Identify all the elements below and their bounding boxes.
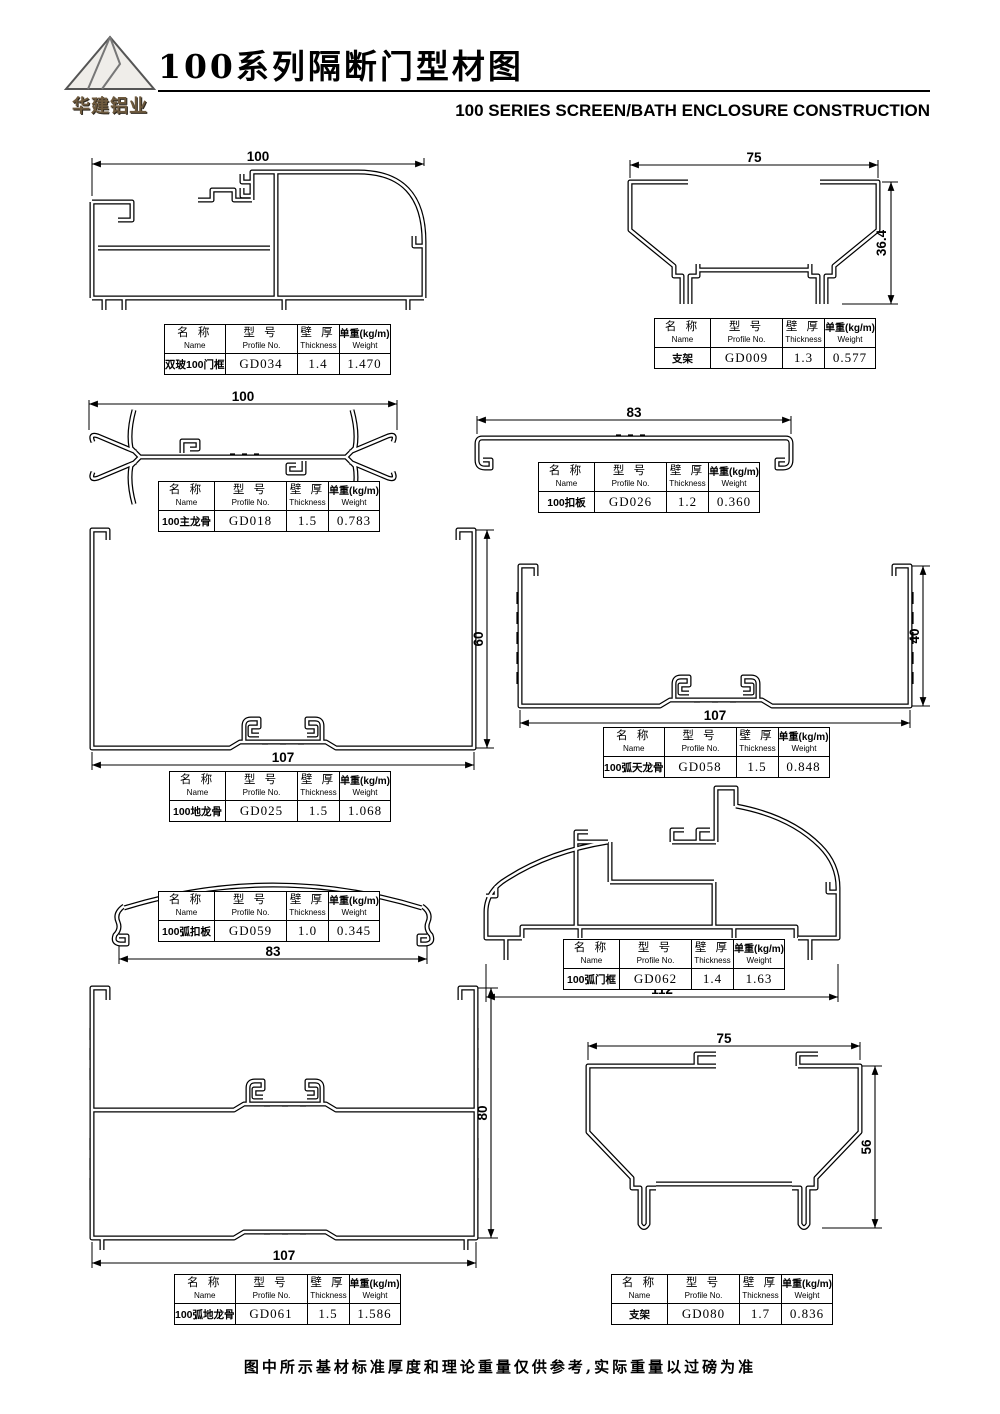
th-model-en: Profile No.: [229, 341, 293, 350]
table-data-row: 双玻100门框 GD034 1.4 1.470: [165, 354, 391, 375]
th-thickness: 壁 厚Thickness: [297, 325, 339, 354]
profile-table-gd059: 名 称Name 型 号Profile No. 壁 厚Thickness 单重(k…: [158, 891, 380, 942]
th-name: 名 称Name: [170, 772, 226, 801]
table-header-row: 名 称Name 型 号Profile No. 壁 厚Thickness 单重(k…: [165, 325, 391, 354]
cell-name: 100地龙骨: [170, 801, 226, 822]
cell-thickness: 1.2: [667, 492, 709, 513]
profile-table-gd062: 名 称Name 型 号Profile No. 壁 厚Thickness 单重(k…: [563, 939, 785, 990]
th-model: 型 号Profile No.: [226, 772, 298, 801]
th-weight: 单重(kg/m)Weight: [329, 482, 380, 511]
th-thickness: 壁 厚Thickness: [287, 482, 329, 511]
cell-model: GD059: [215, 921, 287, 942]
profile-table-gd058: 名 称Name 型 号Profile No. 壁 厚Thickness 单重(k…: [603, 727, 830, 778]
cell-thickness: 1.5: [307, 1304, 349, 1325]
profile-outline-inner: [92, 172, 424, 310]
cell-thickness: 1.0: [287, 921, 329, 942]
profile-outline: [588, 1054, 860, 1228]
th-model: 型 号Profile No.: [711, 319, 783, 348]
th-thickness: 壁 厚Thickness: [307, 1275, 349, 1304]
cell-weight: 1.586: [349, 1304, 400, 1325]
profile-table-gd009: 名 称Name 型 号Profile No. 壁 厚Thickness 单重(k…: [654, 318, 876, 369]
cell-name: 100主龙骨: [159, 511, 215, 532]
profile-outline-inner: [92, 988, 476, 1250]
cell-model: GD034: [225, 354, 297, 375]
footer-note: 图中所示基材标准厚度和理论重量仅供参考,实际重量以过磅为准: [0, 1356, 1000, 1377]
profile-outline: [517, 566, 913, 706]
profile-outline-inner: [486, 788, 838, 960]
cell-name: 100弧扣板: [159, 921, 215, 942]
th-weight-cn: 单重(kg/m): [340, 328, 390, 341]
cell-weight: 1.068: [340, 801, 391, 822]
title-underline: [158, 90, 930, 92]
profile-table-gd025: 名 称Name 型 号Profile No. 壁 厚Thickness 单重(k…: [169, 771, 391, 822]
table-data-row: 100主龙骨 GD018 1.5 0.783: [159, 511, 380, 532]
profile-drawing-gd061: 80 107: [84, 978, 504, 1276]
table-data-row: 100弧地龙骨 GD061 1.5 1.586: [175, 1304, 401, 1325]
th-model: 型 号Profile No.: [595, 463, 667, 492]
table-data-row: 支架 GD009 1.3 0.577: [655, 348, 876, 369]
th-name-cn: 名 称: [165, 327, 225, 341]
table-header-row: 名 称Name 型 号Profile No. 壁 厚Thickness 单重(k…: [612, 1275, 833, 1304]
dim-label-width: 107: [704, 708, 727, 723]
cell-name: 100弧天龙骨: [604, 757, 665, 778]
profile-outline-inner: [588, 1054, 860, 1228]
table-header-row: 名 称Name 型 号Profile No. 壁 厚Thickness 单重(k…: [655, 319, 876, 348]
th-name: 名 称Name: [159, 482, 215, 511]
th-thickness: 壁 厚Thickness: [740, 1275, 782, 1304]
th-model: 型 号Profile No.: [668, 1275, 740, 1304]
th-thickness-en: Thickness: [300, 341, 337, 350]
th-name: 名 称Name: [159, 892, 215, 921]
table-data-row: 100弧天龙骨 GD058 1.5 0.848: [604, 757, 830, 778]
cell-model: GD058: [664, 757, 736, 778]
profile-outline-inner: [92, 530, 474, 748]
dim-label-height: 80: [475, 1105, 490, 1120]
table-header-row: 名 称Name 型 号Profile No. 壁 厚Thickness 单重(k…: [539, 463, 760, 492]
dim-label-width: 100: [232, 389, 255, 404]
cell-thickness: 1.4: [692, 969, 734, 990]
table-header-row: 名 称Name 型 号Profile No. 壁 厚Thickness 单重(k…: [159, 482, 380, 511]
dim-label-width: 107: [272, 750, 295, 765]
th-name: 名 称Name: [655, 319, 711, 348]
th-name: 名 称Name: [539, 463, 595, 492]
th-weight-en: Weight: [342, 341, 387, 350]
th-name: 名 称Name: [175, 1275, 236, 1304]
company-logo-icon: [58, 34, 162, 92]
cell-name: 双玻100门框: [165, 354, 226, 375]
th-weight: 单重(kg/m)Weight: [825, 319, 876, 348]
th-thickness: 壁 厚Thickness: [287, 892, 329, 921]
th-name: 名 称Name: [564, 940, 620, 969]
cell-model: GD018: [215, 511, 287, 532]
dim-label-height: 40: [907, 628, 922, 643]
table-header-row: 名 称Name 型 号Profile No. 壁 厚Thickness 单重(k…: [564, 940, 785, 969]
cell-model: GD061: [235, 1304, 307, 1325]
table-data-row: 100扣板 GD026 1.2 0.360: [539, 492, 760, 513]
profile-outline: [486, 788, 838, 960]
dimension: 60 107: [92, 530, 494, 770]
page-subtitle: 100 SERIES SCREEN/BATH ENCLOSURE CONSTRU…: [0, 101, 930, 121]
th-weight: 单重(kg/m)Weight: [349, 1275, 400, 1304]
th-model: 型 号Profile No.: [664, 728, 736, 757]
cell-thickness: 1.3: [783, 348, 825, 369]
dim-label-width: 83: [626, 405, 642, 420]
cell-weight: 0.577: [825, 348, 876, 369]
profile-outline: [90, 988, 478, 1250]
th-weight: 单重(kg/m)Weight: [782, 1275, 833, 1304]
profile-table-gd034: 名 称Name 型 号Profile No. 壁 厚Thickness 单重(k…: [164, 324, 391, 375]
cell-model: GD080: [668, 1304, 740, 1325]
th-name-en: Name: [168, 341, 222, 350]
cell-model: GD025: [226, 801, 298, 822]
th-model: 型 号Profile No.: [215, 892, 287, 921]
th-name: 名 称Name: [612, 1275, 668, 1304]
dim-label-width: 107: [273, 1248, 296, 1263]
dim-label-height: 36.4: [874, 229, 889, 256]
th-thickness-cn: 壁 厚: [298, 327, 339, 341]
th-name: 名 称Name: [604, 728, 665, 757]
th-weight: 单重(kg/m)Weight: [734, 940, 785, 969]
profile-table-gd061: 名 称Name 型 号Profile No. 壁 厚Thickness 单重(k…: [174, 1274, 401, 1325]
cell-name: 100弧地龙骨: [175, 1304, 236, 1325]
page-title: 100系列隔断门型材图: [158, 40, 524, 88]
profile-outline: [92, 530, 474, 748]
th-weight: 单重(kg/m)Weight: [778, 728, 829, 757]
dim-label-height: 60: [471, 631, 486, 646]
th-weight: 单重(kg/m)Weight: [709, 463, 760, 492]
cell-model: GD009: [711, 348, 783, 369]
profile-outline-inner: [520, 566, 910, 706]
th-thickness: 壁 厚Thickness: [736, 728, 778, 757]
dimension: 100: [89, 389, 397, 430]
profile-outline-inner: [630, 182, 878, 304]
th-thickness: 壁 厚Thickness: [692, 940, 734, 969]
page: { "header": { "logo_text": "华建铝业", "titl…: [0, 0, 1000, 1414]
dim-label-width: 83: [265, 944, 281, 959]
cell-thickness: 1.4: [297, 354, 339, 375]
dimension: 80 107: [92, 988, 498, 1268]
th-model: 型 号Profile No.: [235, 1275, 307, 1304]
profile-drawing-gd080: 75 56: [576, 1036, 888, 1244]
cell-name: 100弧门框: [564, 969, 620, 990]
profile-table-gd018: 名 称Name 型 号Profile No. 壁 厚Thickness 单重(k…: [158, 481, 380, 532]
cell-weight: 0.360: [709, 492, 760, 513]
th-model: 型 号Profile No.: [620, 940, 692, 969]
table-data-row: 100弧扣板 GD059 1.0 0.345: [159, 921, 380, 942]
dimension: 83: [119, 944, 427, 964]
th-weight: 单重(kg/m)Weight: [340, 772, 391, 801]
profile-outline: [630, 182, 878, 304]
dim-label-width: 75: [746, 150, 762, 165]
table-header-row: 名 称Name 型 号Profile No. 壁 厚Thickness 单重(k…: [604, 728, 830, 757]
cell-thickness: 1.5: [736, 757, 778, 778]
profile-drawing-gd058: 40 107: [510, 556, 934, 734]
table-header-row: 名 称Name 型 号Profile No. 壁 厚Thickness 单重(k…: [175, 1275, 401, 1304]
cell-model: GD026: [595, 492, 667, 513]
th-thickness: 壁 厚Thickness: [783, 319, 825, 348]
cell-thickness: 1.7: [740, 1304, 782, 1325]
table-data-row: 100弧门框 GD062 1.4 1.63: [564, 969, 785, 990]
th-model-cn: 型 号: [226, 327, 297, 341]
th-model: 型 号Profile No.: [215, 482, 287, 511]
dim-label-width: 75: [716, 1031, 732, 1046]
cell-weight: 1.470: [339, 354, 390, 375]
cell-weight: 0.345: [329, 921, 380, 942]
th-thickness: 壁 厚Thickness: [667, 463, 709, 492]
th-weight: 单重(kg/m)Weight: [339, 325, 390, 354]
cell-name: 100扣板: [539, 492, 595, 513]
table-header-row: 名 称Name 型 号Profile No. 壁 厚Thickness 单重(k…: [170, 772, 391, 801]
th-thickness: 壁 厚Thickness: [298, 772, 340, 801]
table-data-row: 100地龙骨 GD025 1.5 1.068: [170, 801, 391, 822]
th-name: 名 称Name: [165, 325, 226, 354]
cell-thickness: 1.5: [287, 511, 329, 532]
dim-label-width: 100: [247, 149, 270, 164]
th-weight: 单重(kg/m)Weight: [329, 892, 380, 921]
cell-thickness: 1.5: [298, 801, 340, 822]
table-data-row: 支架 GD080 1.7 0.836: [612, 1304, 833, 1325]
cell-weight: 0.836: [782, 1304, 833, 1325]
dim-label-height: 56: [859, 1139, 874, 1155]
cell-name: 支架: [655, 348, 711, 369]
profile-table-gd080: 名 称Name 型 号Profile No. 壁 厚Thickness 单重(k…: [611, 1274, 833, 1325]
cell-weight: 0.848: [778, 757, 829, 778]
cell-name: 支架: [612, 1304, 668, 1325]
cell-weight: 0.783: [329, 511, 380, 532]
profile-drawing-gd009: 75 36.4: [620, 152, 910, 320]
dimension: 75 56: [588, 1031, 882, 1228]
profile-drawing-gd034: 100: [86, 150, 434, 322]
cell-model: GD062: [620, 969, 692, 990]
table-header-row: 名 称Name 型 号Profile No. 壁 厚Thickness 单重(k…: [159, 892, 380, 921]
profile-table-gd026: 名 称Name 型 号Profile No. 壁 厚Thickness 单重(k…: [538, 462, 760, 513]
profile-outline: [92, 172, 424, 310]
th-model: 型 号Profile No.: [225, 325, 297, 354]
cell-weight: 1.63: [734, 969, 785, 990]
dimension: 75 36.4: [630, 150, 898, 304]
profile-drawing-gd025: 60 107: [84, 520, 500, 776]
dimension: 83: [477, 405, 791, 434]
